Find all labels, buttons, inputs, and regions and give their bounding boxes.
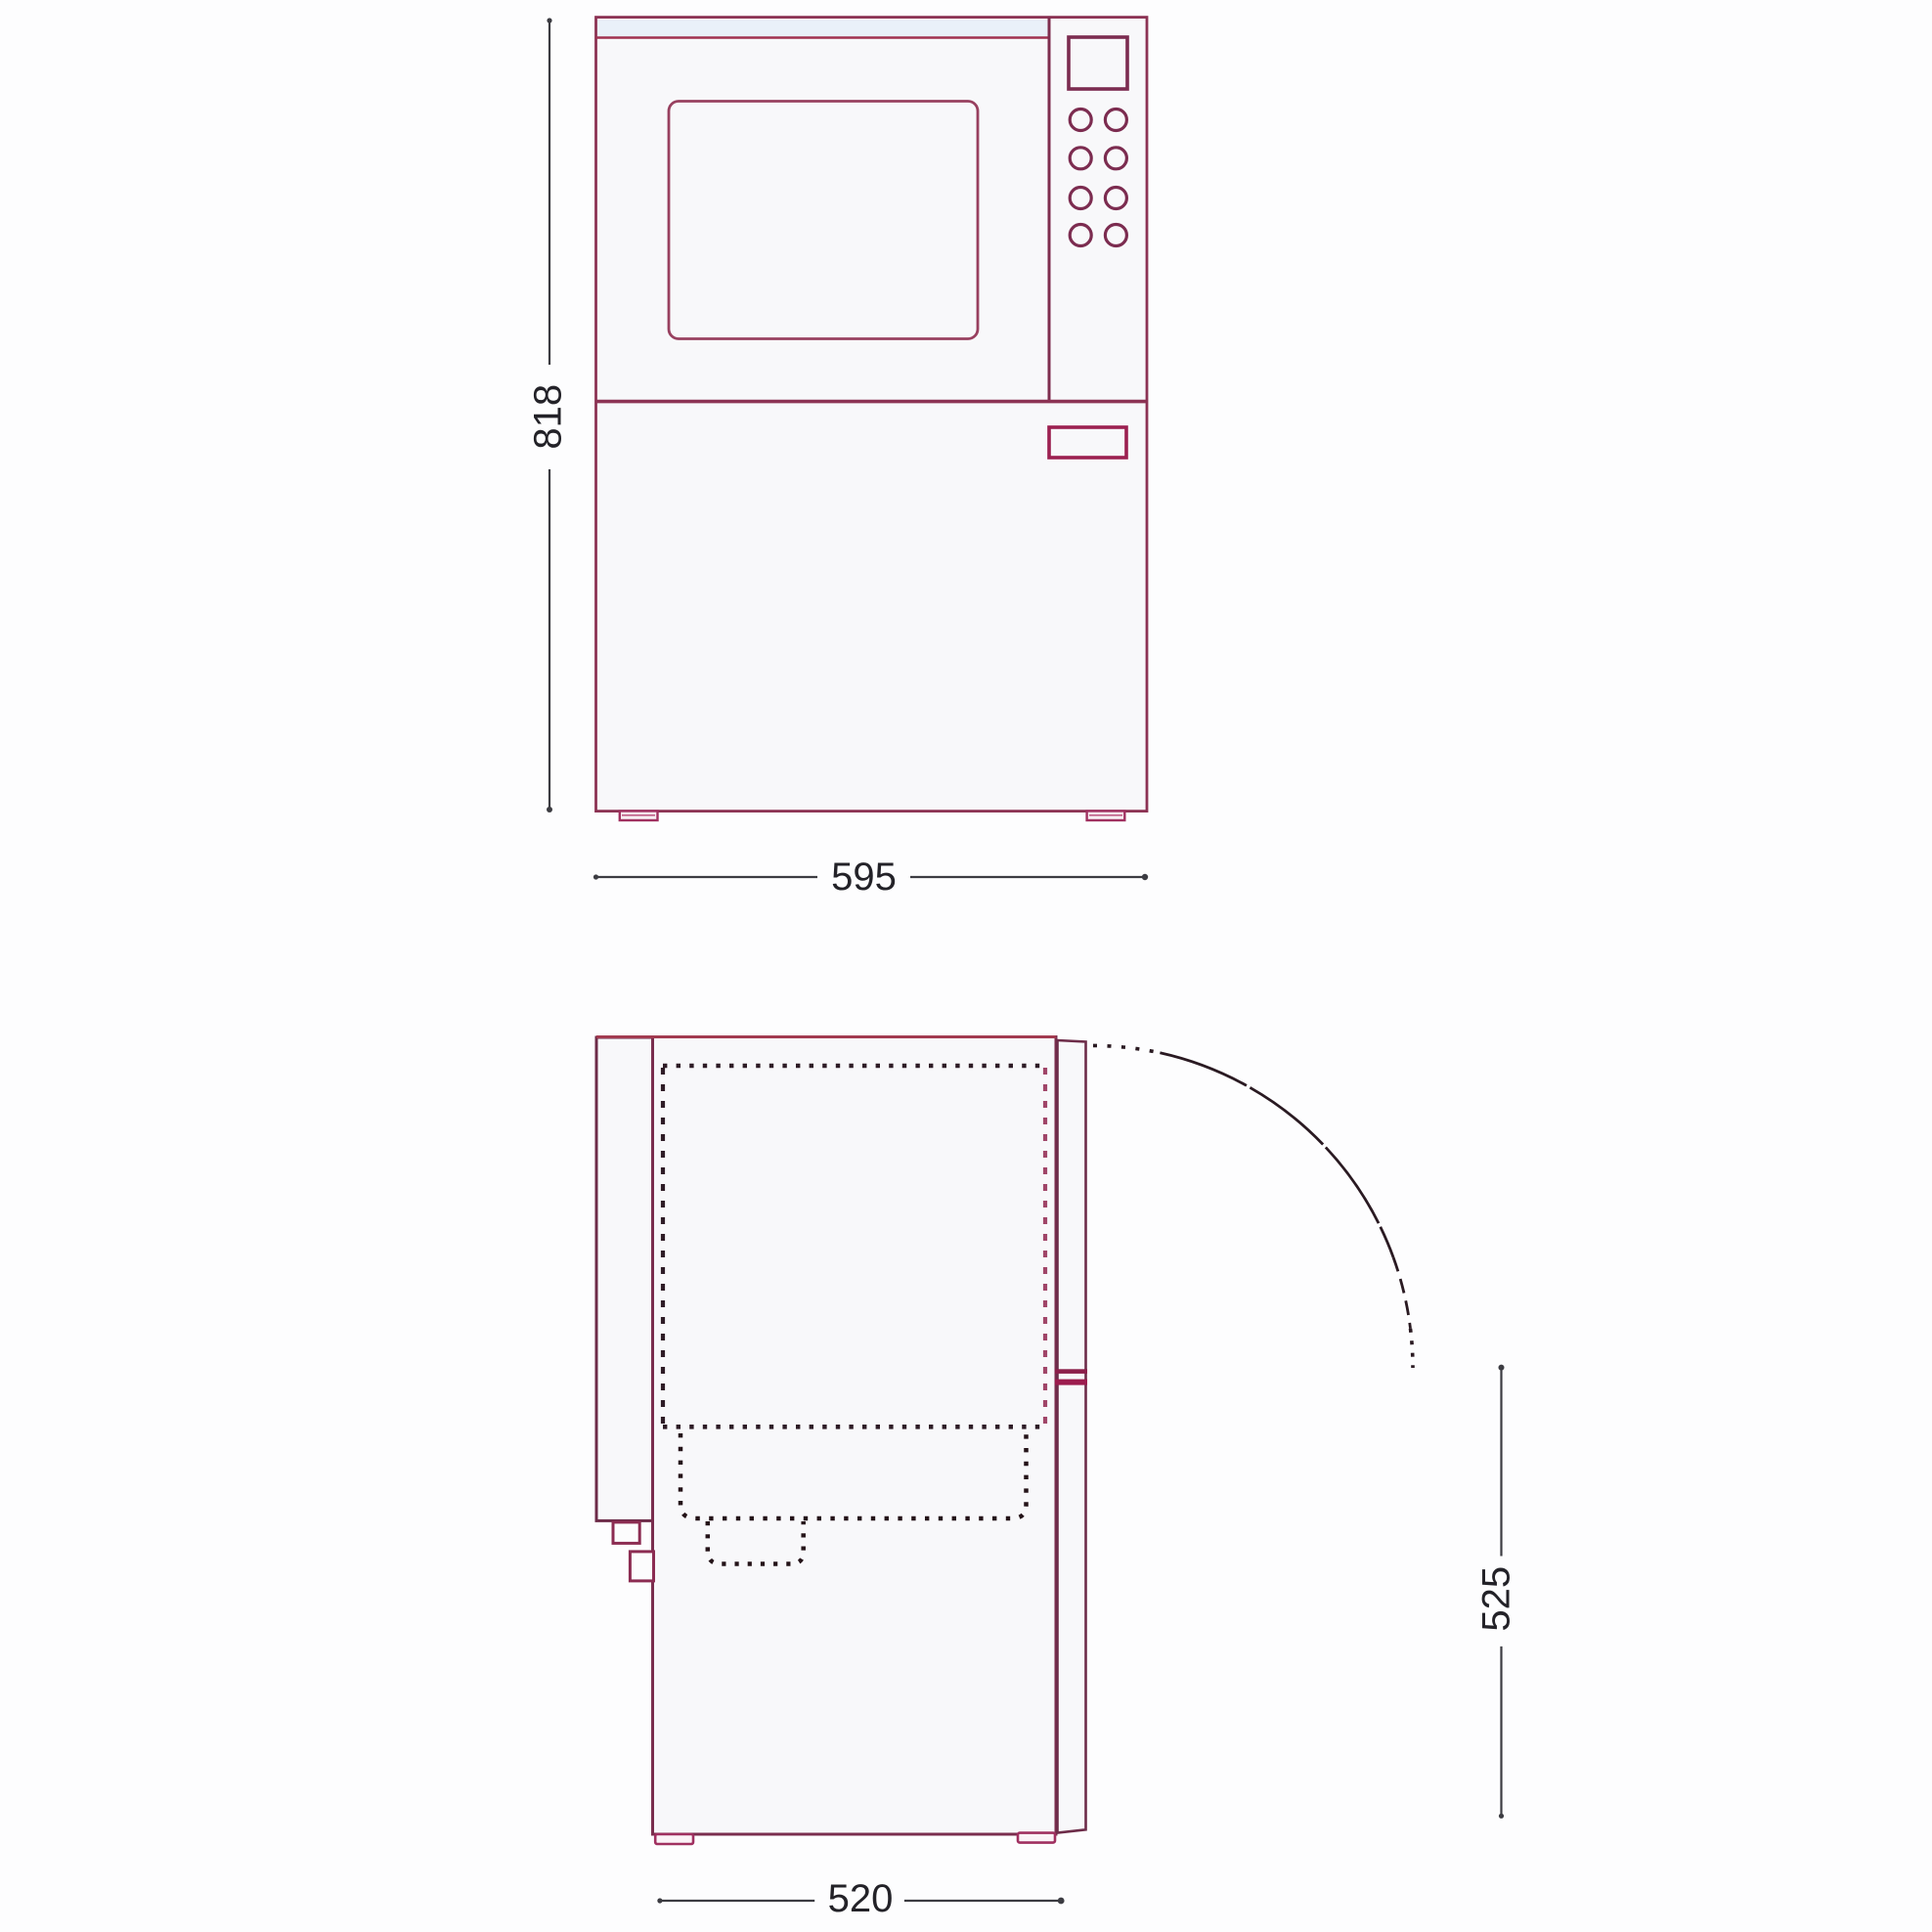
svg-text:818: 818: [526, 384, 569, 450]
svg-text:595: 595: [831, 856, 897, 899]
svg-text:525: 525: [1475, 1566, 1518, 1632]
svg-text:520: 520: [828, 1877, 894, 1920]
